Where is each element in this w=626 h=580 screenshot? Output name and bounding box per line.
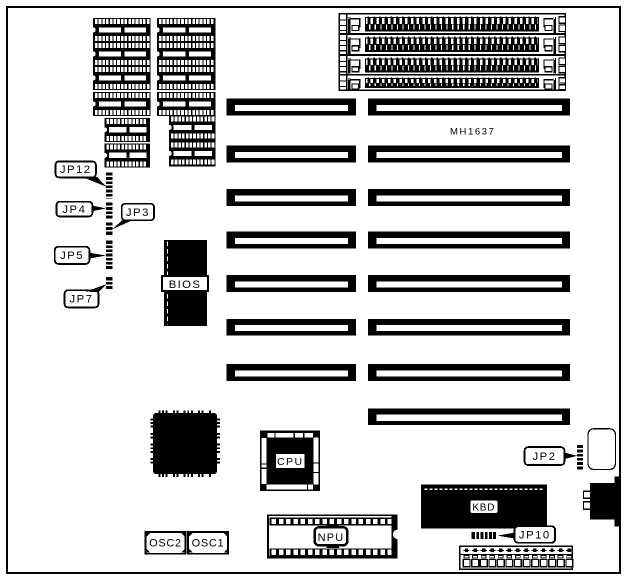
svg-text:JP3: JP3: [126, 207, 150, 219]
svg-text:JP2: JP2: [533, 451, 557, 463]
svg-text:JP4: JP4: [62, 204, 86, 216]
svg-text:KBD: KBD: [472, 503, 495, 514]
svg-text:OSC1: OSC1: [192, 538, 225, 550]
svg-text:JP7: JP7: [70, 294, 94, 306]
svg-text:MH1637: MH1637: [450, 126, 496, 137]
svg-text:OSC2: OSC2: [149, 538, 182, 550]
svg-text:CPU: CPU: [277, 456, 304, 468]
svg-text:NPU: NPU: [318, 532, 345, 544]
svg-text:JP5: JP5: [60, 250, 84, 262]
svg-text:JP10: JP10: [519, 529, 551, 541]
svg-text:JP12: JP12: [60, 164, 92, 176]
svg-text:BIOS: BIOS: [169, 279, 202, 291]
